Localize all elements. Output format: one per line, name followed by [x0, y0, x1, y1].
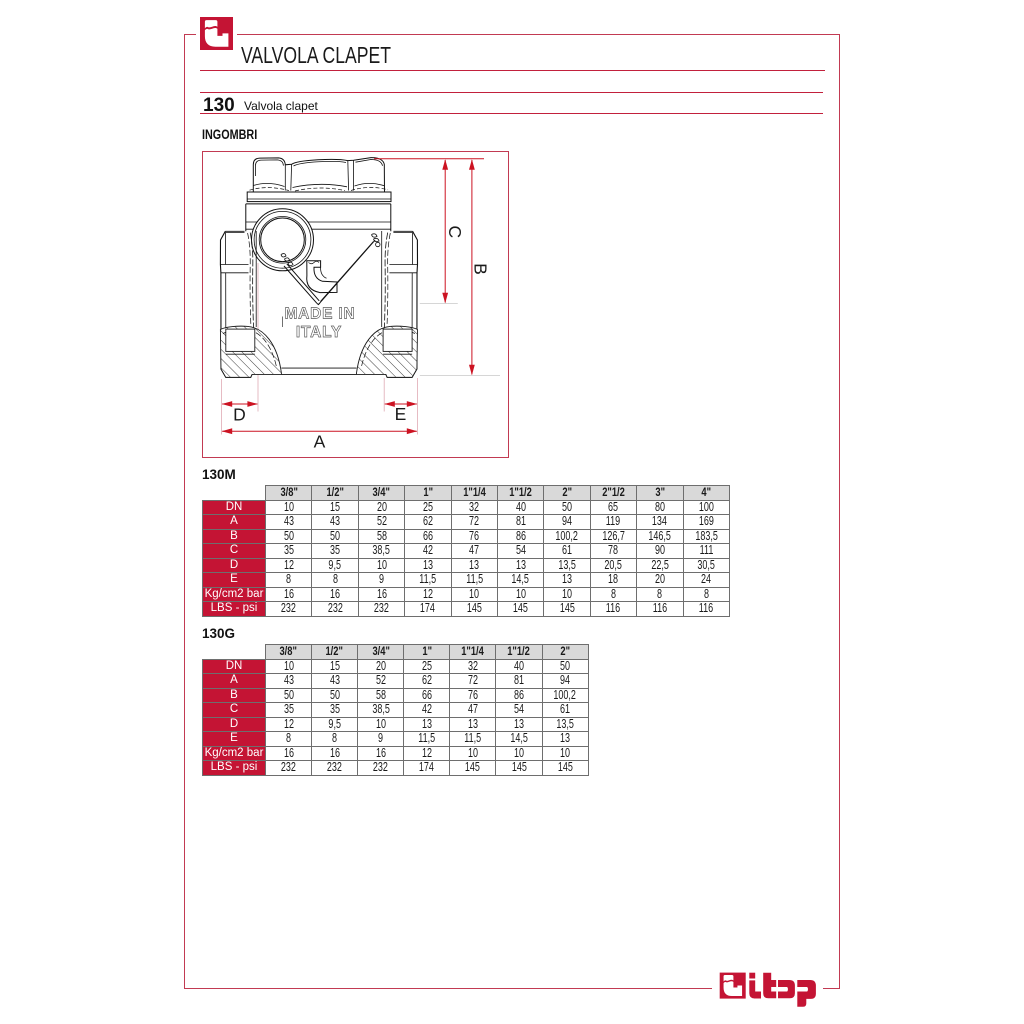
- svg-text:A: A: [314, 432, 326, 452]
- svg-text:C: C: [445, 225, 465, 238]
- svg-text:ITALY: ITALY: [296, 324, 342, 341]
- svg-text:MADE IN: MADE IN: [284, 306, 355, 323]
- svg-text:B: B: [471, 263, 491, 275]
- svg-text:E: E: [395, 404, 407, 424]
- svg-text:D: D: [233, 405, 246, 425]
